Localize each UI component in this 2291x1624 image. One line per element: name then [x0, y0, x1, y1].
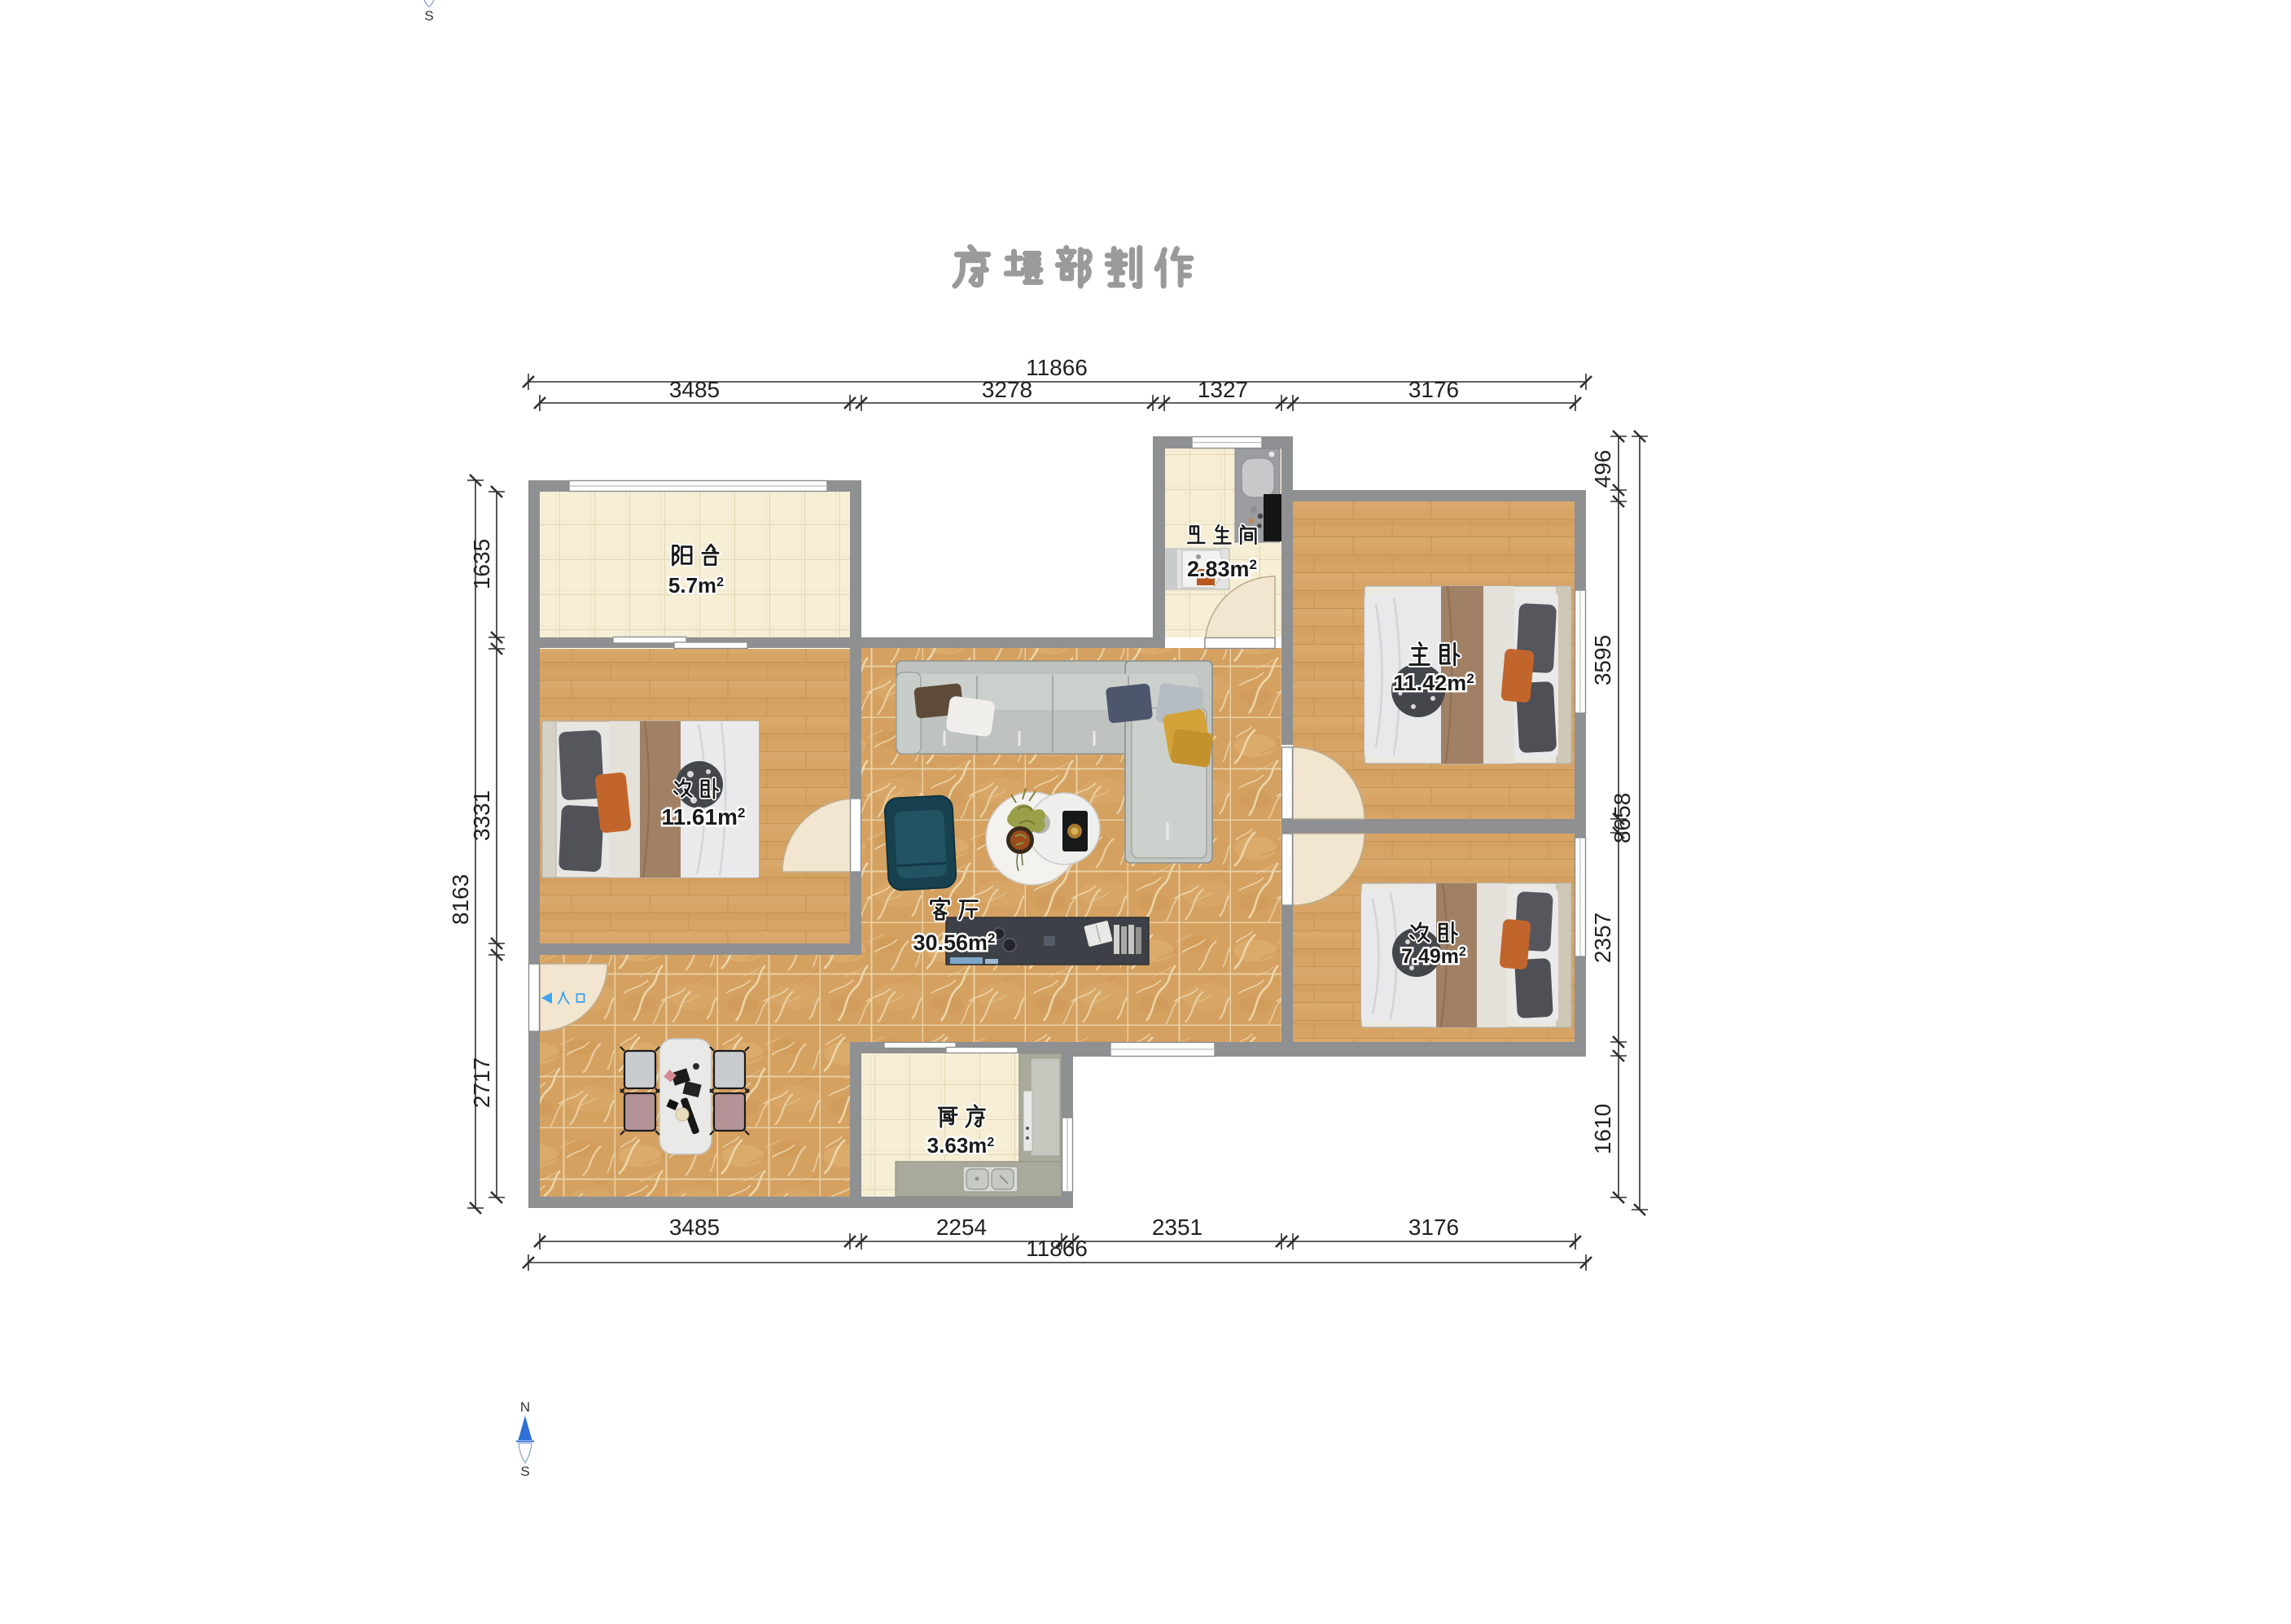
svg-text:5.7m2: 5.7m2	[668, 573, 724, 598]
svg-text:3176: 3176	[1408, 1215, 1459, 1240]
svg-text:3485: 3485	[669, 377, 720, 402]
svg-text:3331: 3331	[469, 790, 494, 841]
svg-text:S: S	[520, 1464, 529, 1479]
svg-text:2717: 2717	[469, 1057, 494, 1108]
svg-text:7.49m2: 7.49m2	[1401, 945, 1466, 968]
svg-text:S: S	[424, 8, 433, 24]
svg-text:2351: 2351	[1152, 1215, 1202, 1240]
svg-text:1635: 1635	[469, 539, 494, 589]
svg-text:8658: 8658	[1610, 793, 1635, 843]
svg-text:1610: 1610	[1590, 1104, 1615, 1154]
svg-text:496: 496	[1590, 450, 1615, 488]
svg-text:11866: 11866	[1026, 1236, 1088, 1261]
svg-text:11866: 11866	[1026, 355, 1088, 380]
svg-text:30.56m2: 30.56m2	[913, 930, 995, 955]
svg-text:2.83m2: 2.83m2	[1187, 557, 1257, 581]
svg-text:N: N	[520, 1399, 530, 1415]
svg-text:3595: 3595	[1590, 635, 1615, 685]
svg-text:1327: 1327	[1198, 377, 1248, 402]
svg-text:3176: 3176	[1408, 377, 1459, 402]
svg-text:2254: 2254	[936, 1215, 987, 1240]
svg-text:2357: 2357	[1590, 913, 1615, 963]
svg-text:3278: 3278	[982, 377, 1032, 402]
svg-text:3485: 3485	[669, 1215, 720, 1240]
svg-text:8163: 8163	[448, 874, 473, 925]
svg-text:11.42m2: 11.42m2	[1393, 671, 1474, 695]
svg-text:3.63m2: 3.63m2	[927, 1133, 995, 1158]
svg-text:11.61m2: 11.61m2	[662, 804, 746, 830]
